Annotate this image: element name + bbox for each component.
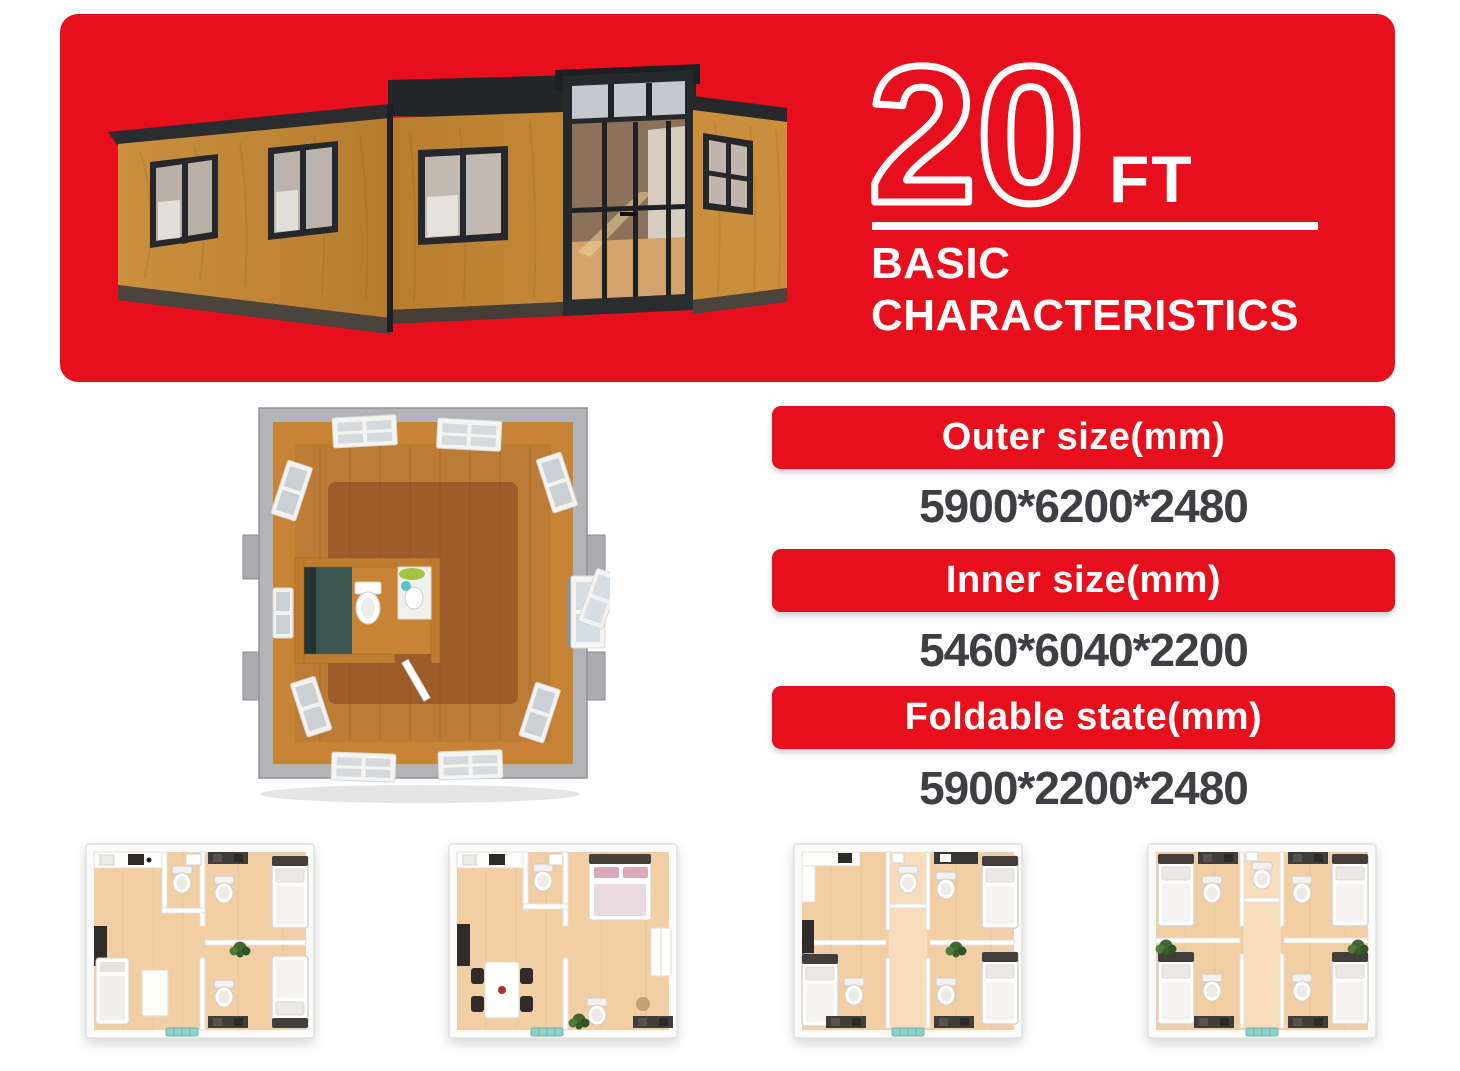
house-window bbox=[268, 141, 338, 240]
toilet bbox=[898, 866, 918, 893]
toilet bbox=[1292, 974, 1312, 1001]
spec-label: Outer size(mm) bbox=[942, 416, 1226, 459]
banner-title: BASIC CHARACTERISTICS bbox=[871, 238, 1299, 342]
toilet bbox=[172, 866, 192, 893]
bed bbox=[272, 856, 308, 928]
desk bbox=[1288, 1016, 1328, 1028]
toilet bbox=[1252, 862, 1272, 889]
desk bbox=[1198, 852, 1238, 864]
tv-cabinet bbox=[802, 920, 814, 954]
wardrobe bbox=[651, 928, 671, 976]
bed bbox=[1332, 854, 1368, 926]
banner-title-line1: BASIC bbox=[871, 238, 1299, 290]
toilet bbox=[1202, 876, 1222, 903]
bath-sink bbox=[1246, 852, 1258, 861]
bed bbox=[802, 954, 838, 1026]
toilet bbox=[533, 864, 553, 891]
bed bbox=[1158, 854, 1194, 926]
door-mat bbox=[1246, 1028, 1278, 1036]
toilet bbox=[936, 978, 956, 1005]
house-window bbox=[150, 154, 218, 248]
kitchen-counter bbox=[457, 852, 523, 868]
bath-mat bbox=[399, 568, 425, 580]
bath-sink bbox=[186, 854, 201, 865]
bed bbox=[982, 856, 1018, 928]
daybed bbox=[96, 958, 129, 1024]
desk bbox=[208, 1016, 248, 1028]
banner-title-line2: CHARACTERISTICS bbox=[871, 290, 1299, 342]
glass-entrance-door bbox=[555, 64, 700, 316]
left-wing-module bbox=[108, 104, 390, 334]
bottom-window bbox=[331, 752, 396, 782]
spec-value-inner-size: 5460*6040*2200 bbox=[772, 627, 1395, 673]
title-underline bbox=[872, 222, 1318, 230]
house-window bbox=[703, 133, 753, 215]
double-bed bbox=[589, 854, 651, 920]
door-mat bbox=[166, 1028, 198, 1036]
desk bbox=[1194, 1016, 1234, 1028]
opened-window bbox=[567, 568, 610, 648]
kitchen-counter bbox=[94, 852, 162, 868]
floorplan-thumbnail-3 bbox=[786, 840, 1030, 1046]
center-module bbox=[387, 104, 563, 332]
bed bbox=[1158, 952, 1194, 1024]
bath-sink bbox=[549, 854, 563, 865]
right-wing-module bbox=[693, 96, 787, 314]
coffee-table bbox=[142, 970, 168, 1016]
floorplan-top-view bbox=[240, 402, 610, 814]
toilet bbox=[936, 872, 956, 899]
door-mat bbox=[531, 1028, 563, 1036]
size-badge: 20 FT bbox=[866, 50, 1336, 215]
wash-basin bbox=[401, 581, 411, 591]
desk bbox=[1288, 852, 1328, 864]
spec-label: Inner size(mm) bbox=[946, 559, 1221, 602]
size-value-text: 20 bbox=[868, 50, 1085, 215]
toilet bbox=[1292, 876, 1312, 903]
floorplan-thumbnail-4 bbox=[1140, 840, 1384, 1046]
desk bbox=[208, 852, 248, 864]
bottom-window bbox=[438, 750, 503, 780]
spec-label: Foldable state(mm) bbox=[905, 696, 1262, 739]
desk bbox=[633, 1016, 673, 1028]
spec-value-foldable-state: 5900*2200*2480 bbox=[772, 765, 1395, 811]
desk bbox=[826, 1016, 866, 1028]
spec-bar-outer-size: Outer size(mm) bbox=[772, 406, 1395, 469]
skylight-window bbox=[332, 415, 397, 448]
floorplan-thumbnail-1 bbox=[78, 840, 322, 1046]
tv-cabinet bbox=[457, 924, 470, 966]
floorplan-thumbnail-2 bbox=[441, 840, 685, 1046]
spec-bar-inner-size: Inner size(mm) bbox=[772, 549, 1395, 612]
bed bbox=[272, 956, 308, 1028]
size-unit-text: FT bbox=[1109, 142, 1194, 215]
spec-bar-foldable-state: Foldable state(mm) bbox=[772, 686, 1395, 749]
house-window bbox=[418, 146, 508, 245]
door-handle bbox=[620, 212, 636, 216]
spec-value-outer-size: 5900*6200*2480 bbox=[772, 483, 1395, 529]
toilet bbox=[844, 978, 864, 1005]
skylight-window bbox=[436, 418, 501, 451]
toilet bbox=[214, 876, 234, 903]
page-root: 20 FT BASIC CHARACTERISTICS bbox=[0, 0, 1460, 1071]
toilet bbox=[355, 582, 381, 624]
chair bbox=[636, 997, 650, 1011]
bed bbox=[982, 952, 1018, 1024]
door-mat bbox=[892, 1028, 924, 1036]
container-house-render-icon bbox=[100, 42, 800, 342]
toilet bbox=[1202, 974, 1222, 1001]
toilet bbox=[214, 980, 234, 1007]
side-window bbox=[273, 588, 293, 638]
toilet bbox=[587, 998, 607, 1025]
bed bbox=[1332, 952, 1368, 1024]
bath-sink bbox=[940, 854, 951, 862]
bath-sink bbox=[892, 853, 904, 863]
desk bbox=[934, 1016, 974, 1028]
